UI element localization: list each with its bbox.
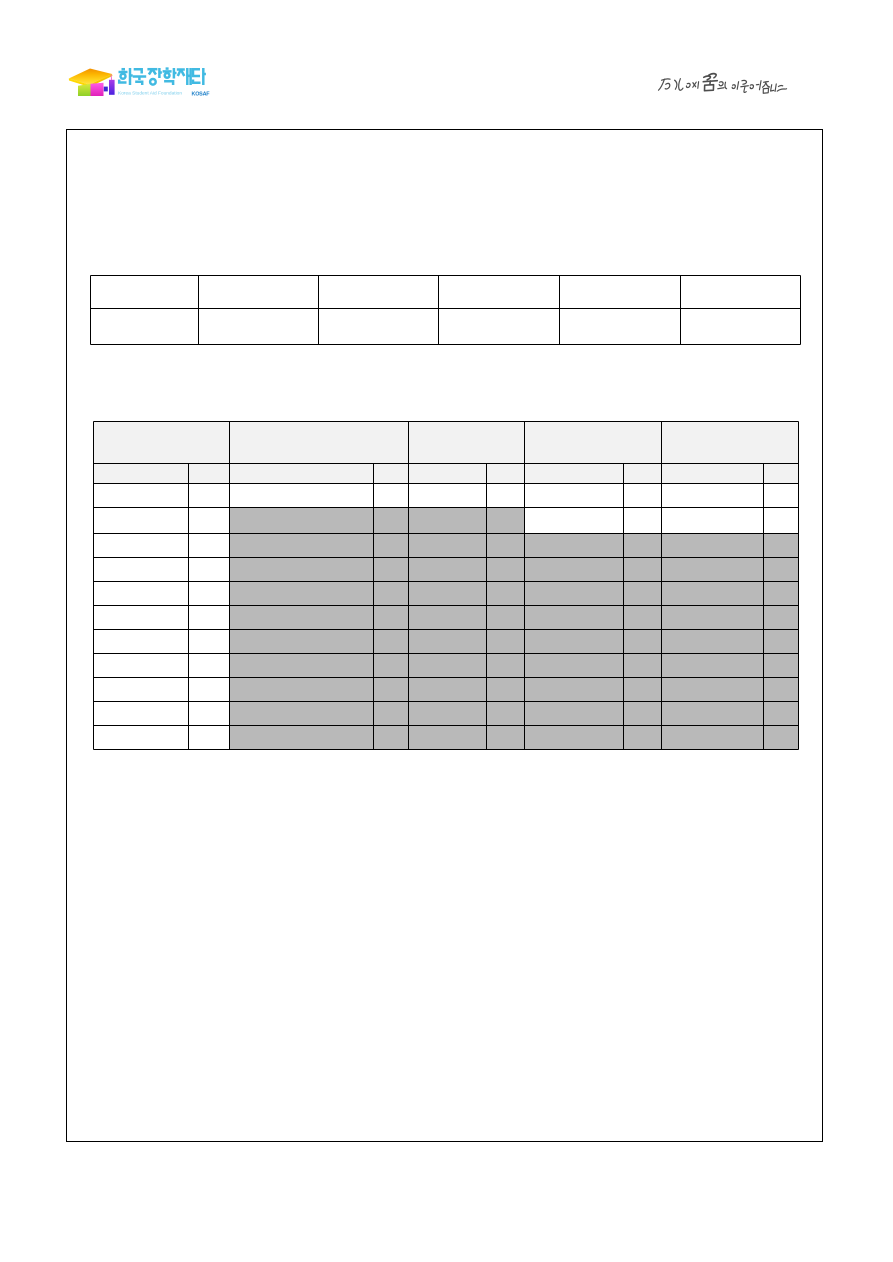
svg-text:Korea Student Aid Foundation: Korea Student Aid Foundation [118, 91, 182, 97]
svg-text:KOSAF: KOSAF [192, 92, 211, 98]
